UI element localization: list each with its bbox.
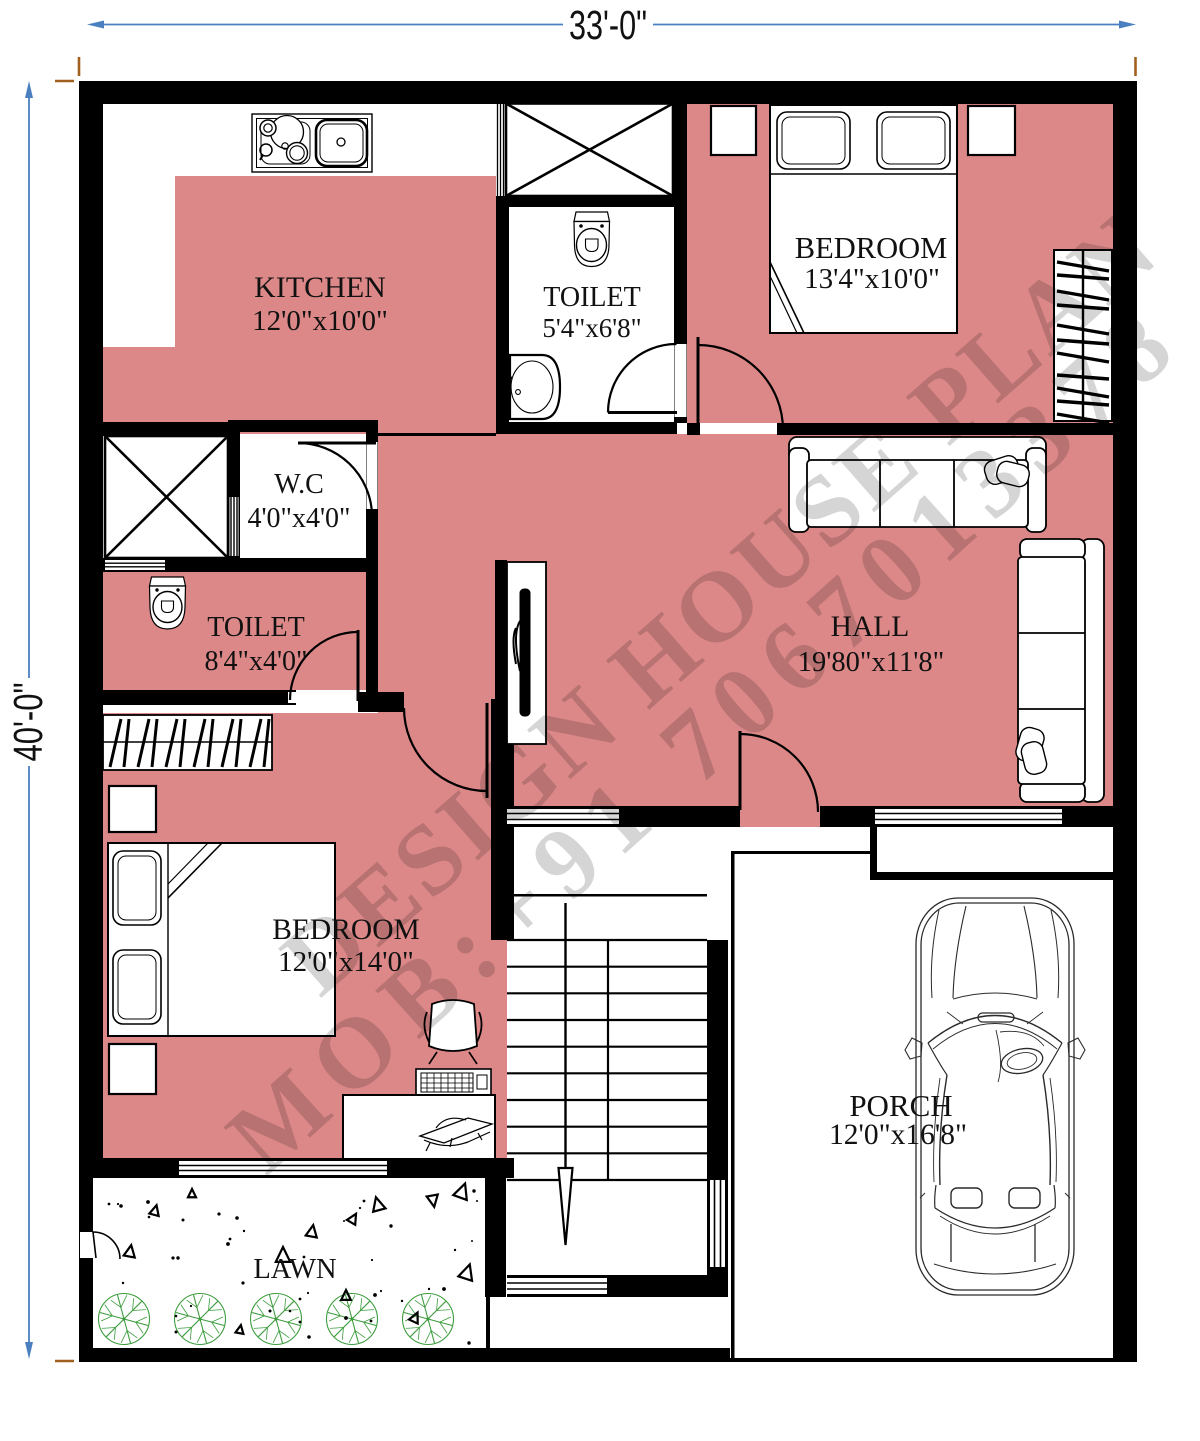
svg-text:12'0"x16'8": 12'0"x16'8" [829, 1119, 967, 1151]
svg-text:13'4"x10'0": 13'4"x10'0" [804, 263, 940, 295]
svg-text:BEDROOM: BEDROOM [795, 231, 948, 265]
svg-text:40'-0": 40'-0" [5, 683, 51, 762]
svg-text:KITCHEN: KITCHEN [254, 271, 386, 304]
svg-text:LAWN: LAWN [253, 1254, 336, 1285]
svg-text:TOILET: TOILET [207, 612, 304, 643]
svg-text:W.C: W.C [274, 469, 324, 500]
svg-text:33'-0": 33'-0" [569, 2, 647, 48]
svg-text:12'0"x10'0": 12'0"x10'0" [252, 305, 388, 337]
svg-text:PORCH: PORCH [849, 1088, 952, 1123]
svg-text:5'4"x6'8": 5'4"x6'8" [542, 313, 641, 343]
svg-text:4'0"x4'0": 4'0"x4'0" [248, 503, 351, 534]
svg-text:8'4"x4'0": 8'4"x4'0" [205, 646, 308, 677]
svg-text:TOILET: TOILET [543, 282, 640, 313]
